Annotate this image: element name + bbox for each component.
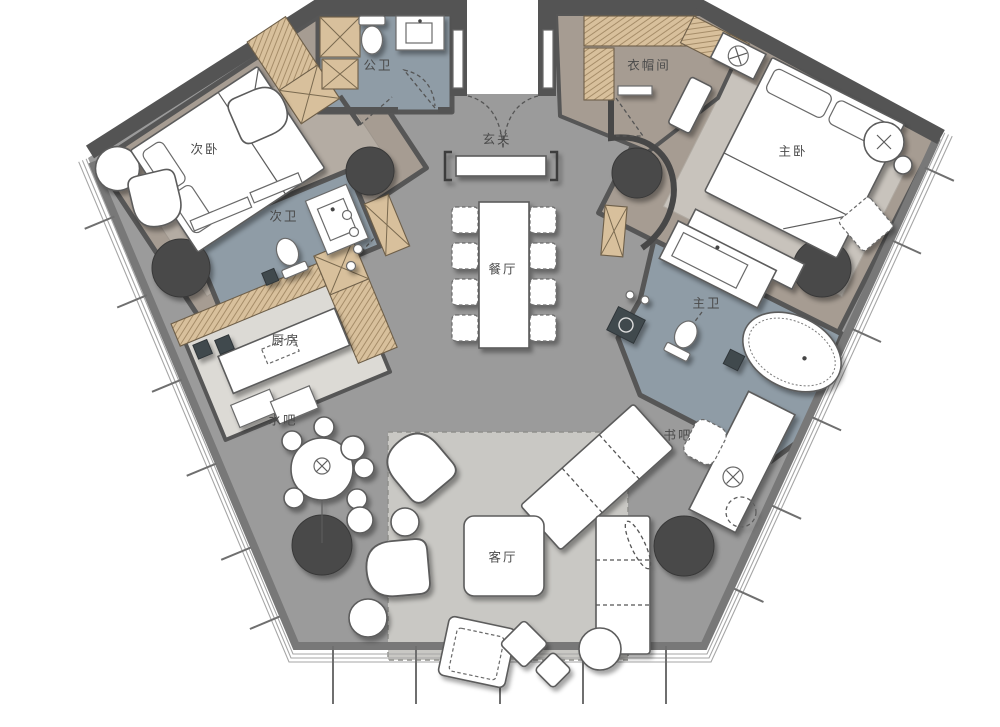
cloakroom-wardrobe-side [584, 48, 614, 100]
floor-plan-canvas [0, 0, 1000, 727]
stool-icon [347, 489, 367, 509]
stool-icon [314, 417, 334, 437]
stool-icon [894, 156, 912, 174]
stool-icon [284, 488, 304, 508]
side-table-icon [349, 599, 387, 637]
cloakroom-shelf-icon [618, 86, 652, 95]
entry-recess [467, 0, 538, 94]
foyer-console [445, 152, 557, 180]
cloakroom-wardrobe-top [584, 16, 696, 46]
column-icon [612, 148, 662, 198]
column-icon [654, 516, 714, 576]
floor-plan: 次卧 公卫 玄关 衣帽间 主卧 次卫 厨房 餐厅 主卫 水吧 书吧 客厅 [0, 0, 1000, 727]
console-table-icon [456, 156, 546, 176]
toilet-icon [359, 16, 385, 54]
side-table-icon [341, 436, 365, 460]
coffee-table-icon [464, 516, 544, 596]
side-table-icon [347, 507, 373, 533]
floor-lamp-icon [579, 628, 621, 670]
stool-icon [282, 431, 302, 451]
lamp-icon [723, 467, 743, 487]
column-icon [346, 147, 394, 195]
stool-icon [354, 458, 374, 478]
guest-bath-sink [396, 16, 444, 50]
side-table-icon [391, 508, 419, 536]
armchair-icon [364, 538, 431, 598]
dining-table-icon [479, 202, 529, 348]
